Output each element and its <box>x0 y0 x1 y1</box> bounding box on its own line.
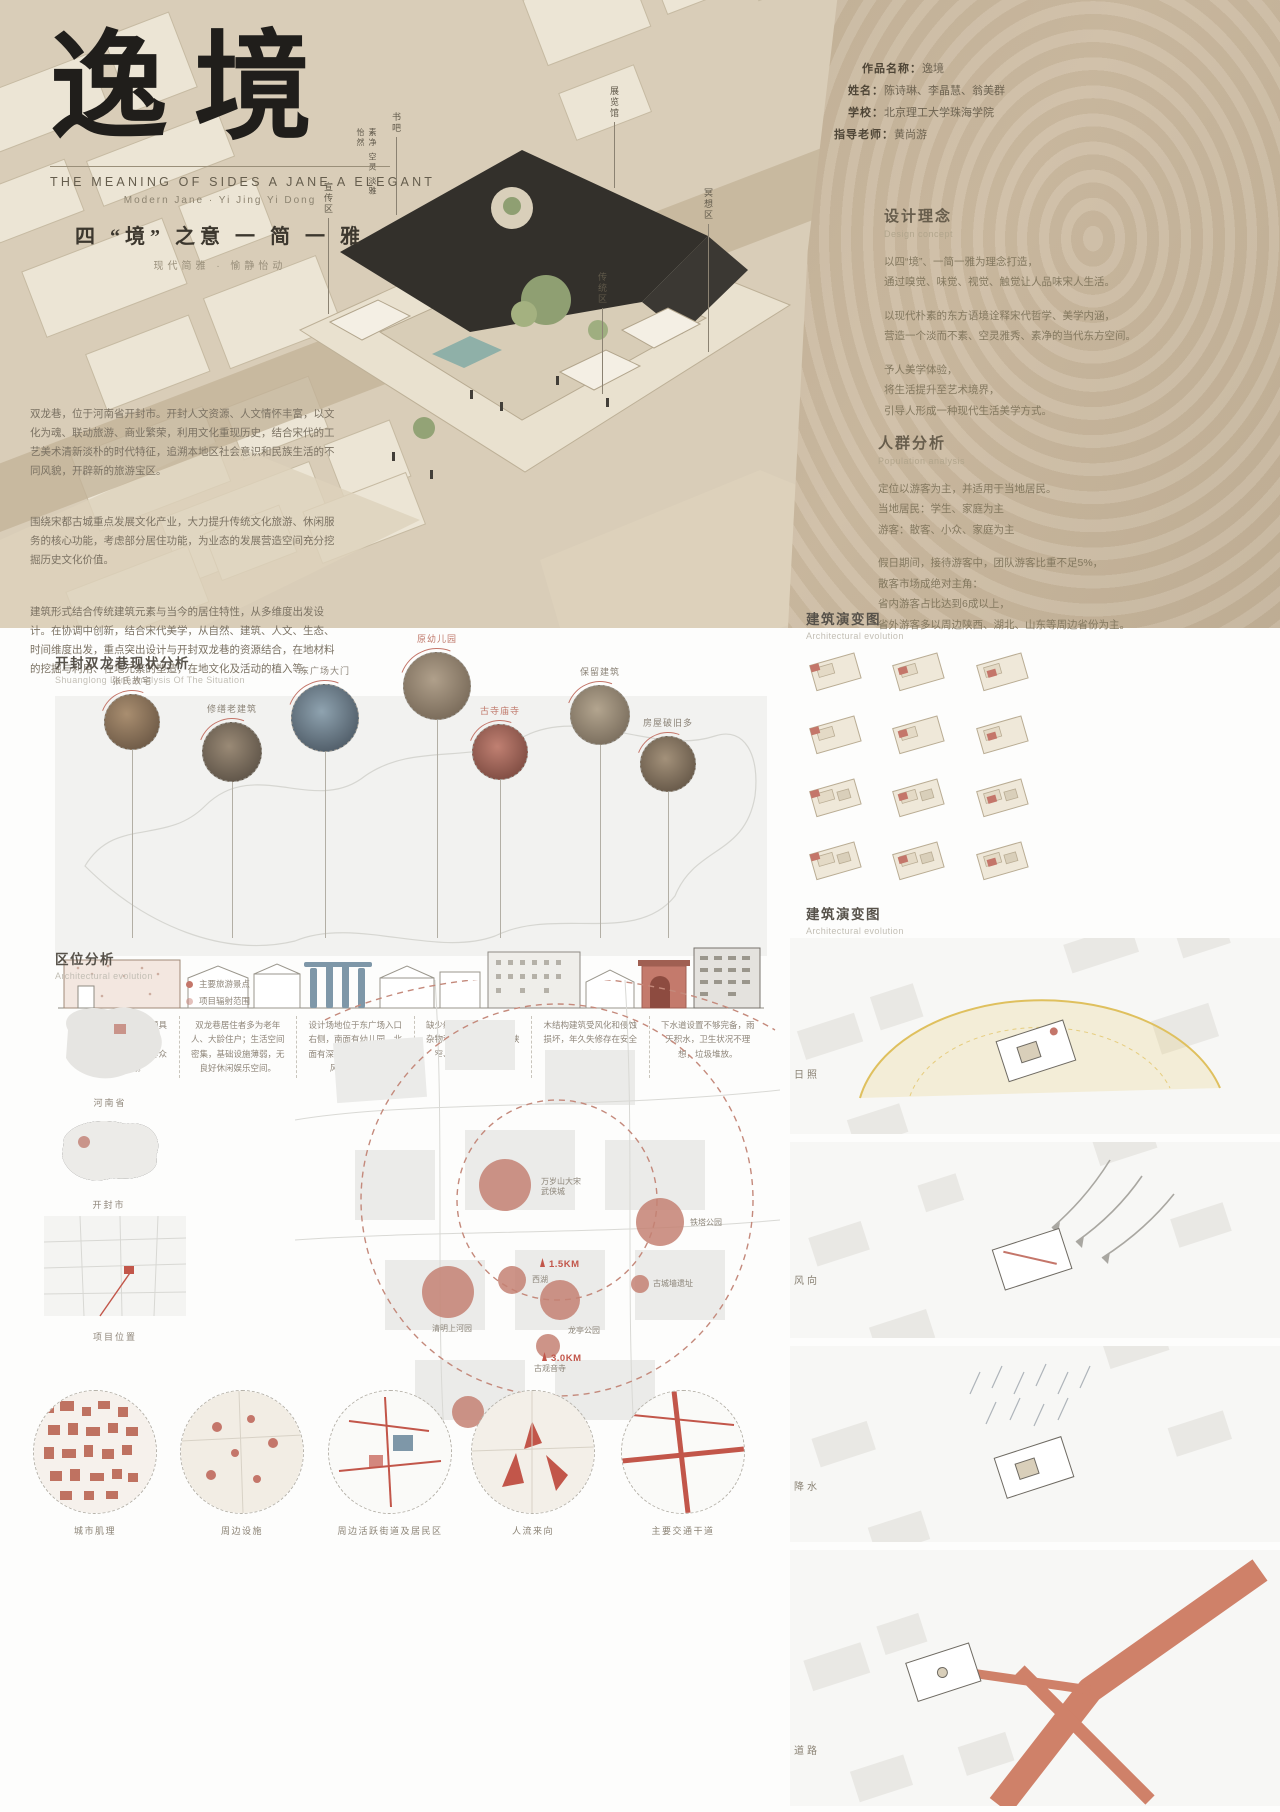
zone-callout: 传统区 <box>596 272 609 394</box>
legend-label: 项目辐射范围 <box>199 995 250 1007</box>
evolution-step-diagram <box>965 640 1048 703</box>
location-map <box>295 980 780 1450</box>
legend-item: 项目辐射范围 <box>186 995 250 1007</box>
callout-leader-line <box>708 224 709 352</box>
vignette-leader-line <box>600 745 601 938</box>
evolution-step-diagram <box>881 640 964 703</box>
tagline-sub: 现代简雅 · 愉静怡动 <box>50 257 390 272</box>
vignette-label: 张氏故宅 <box>112 674 152 687</box>
elevation-caption: 双龙巷居住者多为老年人、大龄住户；生活空间密集，基础设施薄弱，无良好休闲娱乐空间… <box>179 1016 297 1078</box>
info-label: 指导老师： <box>834 129 894 141</box>
minimap-label: 项目位置 <box>40 1330 190 1343</box>
population-title: 人群分析 <box>878 432 1268 453</box>
poi-dot <box>422 1266 474 1318</box>
poi-label: 古观音寺 <box>534 1364 566 1374</box>
site-photo-vignette <box>104 694 160 750</box>
district-analysis-label: 城市肌理 <box>74 1524 116 1537</box>
env-label-sunlight: 日照 <box>794 1066 820 1081</box>
project-info: 作品名称：逸境 姓名：陈诗琳、李晶慧、翁美群 学校：北京理工大学珠海学院 指导老… <box>862 58 1005 146</box>
concept-paragraph: 以现代朴素的东方语境诠释宋代哲学、美学内涵， 营造一个淡而不素、空灵雅秀、素净的… <box>884 306 1264 347</box>
concept-subtitle: Design concept <box>884 229 1264 239</box>
location-title: 区位分析 <box>55 948 153 968</box>
vignette-leader-line <box>325 752 326 938</box>
district-analysis-label: 主要交通干道 <box>651 1524 714 1537</box>
vignette-leader-line <box>668 792 669 938</box>
info-value: 陈诗琳、李晶慧、翁美群 <box>884 85 1005 97</box>
info-value: 黄尚游 <box>894 129 927 141</box>
district-analysis-label: 人流来向 <box>512 1524 554 1537</box>
site-photo-vignette <box>291 684 359 752</box>
district-analysis-circle <box>621 1390 745 1514</box>
vignette-label: 原幼儿园 <box>417 632 457 645</box>
design-concept-panel: 设计理念 Design concept 以四“境”、一简一雅为理念打造， 通过嗅… <box>884 205 1264 432</box>
env-card-sunlight: 日照 <box>790 938 1280 1134</box>
env-label-rain: 降水 <box>794 1478 820 1493</box>
vignette-leader-line <box>500 780 501 938</box>
minimap-label: 河南省 <box>48 1096 172 1109</box>
district-analysis-label: 周边设施 <box>221 1524 263 1537</box>
site-photo-vignette <box>640 736 696 792</box>
radius-label-1: 1.5KM <box>540 1258 579 1270</box>
district-analysis-label: 周边活跃街道及居民区 <box>337 1524 442 1537</box>
legend-label: 主要旅游景点 <box>199 978 250 990</box>
info-value: 逸境 <box>922 63 944 75</box>
site-photo-vignette <box>570 685 630 745</box>
radius-label-2: 3.0KM <box>542 1352 581 1364</box>
district-analysis-circle <box>328 1390 452 1514</box>
presentation-board: 书吧展览馆宣传区冥想区传统区 逸境 素净 空灵 淡雅 怡然 THE MEANIN… <box>0 0 1280 1812</box>
population-subtitle: Population analysis <box>878 456 1268 466</box>
zone-callout: 展览馆 <box>608 86 621 188</box>
intro-paragraph: 双龙巷，位于河南省开封市。开封人文资源、人文情怀丰富，以文化为魂、联动旅游、商业… <box>30 405 342 481</box>
district-analysis-circle <box>180 1390 304 1514</box>
poi-dot <box>636 1198 684 1246</box>
tagline: 四 “境” 之意 一 简 一 雅 <box>50 220 390 249</box>
evolution2-subtitle: Architectural evolution <box>806 926 904 936</box>
poster-title: 逸境 <box>50 30 390 148</box>
env-label-roads: 道路 <box>794 1742 820 1757</box>
poi-label: 万岁山大宋 武侠城 <box>541 1177 581 1198</box>
minimap-province: 河南省 <box>48 1000 172 1109</box>
concept-paragraph: 予人美学体验， 将生活提升至艺术境界， 引导人形成一种现代生活美学方式。 <box>884 360 1264 421</box>
vignette-leader-line <box>132 750 133 938</box>
evolution-step-diagram <box>965 703 1048 766</box>
env-label-wind: 风向 <box>794 1272 820 1287</box>
vignette-label: 东广场大门 <box>300 664 350 677</box>
vignette-label: 修缮老建筑 <box>207 702 257 715</box>
location-header: 区位分析 Architectural evolution <box>55 948 153 981</box>
minimap-label: 开封市 <box>50 1198 168 1211</box>
poi-label: 清明上河园 <box>432 1324 472 1334</box>
info-label: 作品名称： <box>862 63 922 75</box>
evolution-step-diagram <box>881 829 964 892</box>
vignette-leader-line <box>437 720 438 938</box>
callout-leader-line <box>602 308 603 394</box>
evolution-step-diagram <box>881 703 964 766</box>
map-legend: 主要旅游景点 项目辐射范围 <box>186 978 250 1012</box>
poi-dot <box>540 1280 580 1320</box>
poi-dot <box>479 1159 531 1211</box>
evolution-grid <box>798 640 1048 892</box>
site-photo-vignette <box>472 724 528 780</box>
evolution-step-diagram <box>798 640 881 703</box>
info-row: 姓名：陈诗琳、李晶慧、翁美群 <box>848 80 1005 102</box>
info-row: 学校：北京理工大学珠海学院 <box>848 102 1005 124</box>
poi-label: 铁塔公园 <box>690 1218 722 1228</box>
evolution-step-diagram <box>965 766 1048 829</box>
poi-label: 龙亭公园 <box>568 1326 600 1336</box>
location-subtitle: Architectural evolution <box>55 971 153 981</box>
evolution-step-diagram <box>798 766 881 829</box>
info-value: 北京理工大学珠海学院 <box>884 107 994 119</box>
poi-label: 古城墙遗址 <box>653 1279 693 1289</box>
situation-title: 开封双龙巷现状分析 <box>55 652 245 672</box>
district-analysis-circle <box>33 1390 157 1514</box>
poi-dot <box>498 1266 526 1294</box>
legend-dot-icon <box>186 981 193 988</box>
env-card-wind: 风向 <box>790 1142 1280 1338</box>
hero-section: 书吧展览馆宣传区冥想区传统区 逸境 素净 空灵 淡雅 怡然 THE MEANIN… <box>0 0 1280 628</box>
evolution-title: 建筑演变图 <box>806 608 904 628</box>
title-side-chars: 素净 空灵 淡雅 怡然 <box>342 128 378 198</box>
population-panel: 人群分析 Population analysis 定位以游客为主，并适用于当地居… <box>878 432 1268 646</box>
intro-paragraph: 围绕宋都古城重点发展文化产业，大力提升传统文化旅游、休闲服务的核心功能，考虑部分… <box>30 513 342 570</box>
minimap-site: 项目位置 <box>40 1212 190 1343</box>
evolution-step-diagram <box>881 766 964 829</box>
population-paragraph: 假日期间，接待游客中，团队游客比重不足5%， 散客市场成绝对主角： 省内游客占比… <box>878 553 1268 635</box>
district-analysis-circle <box>471 1390 595 1514</box>
zone-callout-label: 书吧 <box>390 112 403 134</box>
evolution-step-diagram <box>798 703 881 766</box>
site-photo-vignette <box>202 722 262 782</box>
evolution-step-diagram <box>965 829 1048 892</box>
concept-paragraph: 以四“境”、一简一雅为理念打造， 通过嗅觉、味觉、视觉、触觉让人品味宋人生活。 <box>884 252 1264 293</box>
vignette-label: 保留建筑 <box>580 665 620 678</box>
evolution-header: 建筑演变图 Architectural evolution <box>806 608 904 641</box>
legend-dot-icon <box>186 998 193 1005</box>
evolution2-header: 建筑演变图 Architectural evolution <box>806 903 904 936</box>
vignette-label: 古寺庙寺 <box>480 704 520 717</box>
poi-dot <box>631 1275 649 1293</box>
env-card-roads: 道路 <box>790 1550 1280 1806</box>
info-row: 指导老师：黄尚游 <box>834 124 1005 146</box>
zone-callout-label: 展览馆 <box>608 86 621 119</box>
info-label: 学校： <box>848 107 884 119</box>
site-photo-vignette <box>403 652 471 720</box>
info-label: 姓名： <box>848 85 884 97</box>
legend-item: 主要旅游景点 <box>186 978 250 990</box>
title-english-2: Modern Jane · Yi Jing Yi Dong <box>50 195 390 206</box>
zone-callout-label: 传统区 <box>596 272 609 305</box>
minimap-city: 开封市 <box>50 1112 168 1211</box>
title-block: 逸境 素净 空灵 淡雅 怡然 THE MEANING OF SIDES A JA… <box>50 30 390 272</box>
vignette-leader-line <box>232 782 233 938</box>
evolution-step-diagram <box>798 829 881 892</box>
info-row: 作品名称：逸境 <box>862 58 1005 80</box>
env-card-rain: 降水 <box>790 1346 1280 1542</box>
concept-title: 设计理念 <box>884 205 1264 226</box>
poi-label: 西湖 <box>532 1275 548 1285</box>
vignette-label: 房屋破旧多 <box>643 716 693 729</box>
evolution2-title: 建筑演变图 <box>806 903 904 923</box>
population-paragraph: 定位以游客为主，并适用于当地居民。 当地居民：学生、家庭为主 游客：散客、小众、… <box>878 479 1268 540</box>
zone-callout: 冥想区 <box>702 188 715 352</box>
zone-callout: 书吧 <box>390 112 403 215</box>
title-english: THE MEANING OF SIDES A JANE A ELEGANT <box>50 166 390 189</box>
callout-leader-line <box>614 122 615 188</box>
zone-callout-label: 冥想区 <box>702 188 715 221</box>
